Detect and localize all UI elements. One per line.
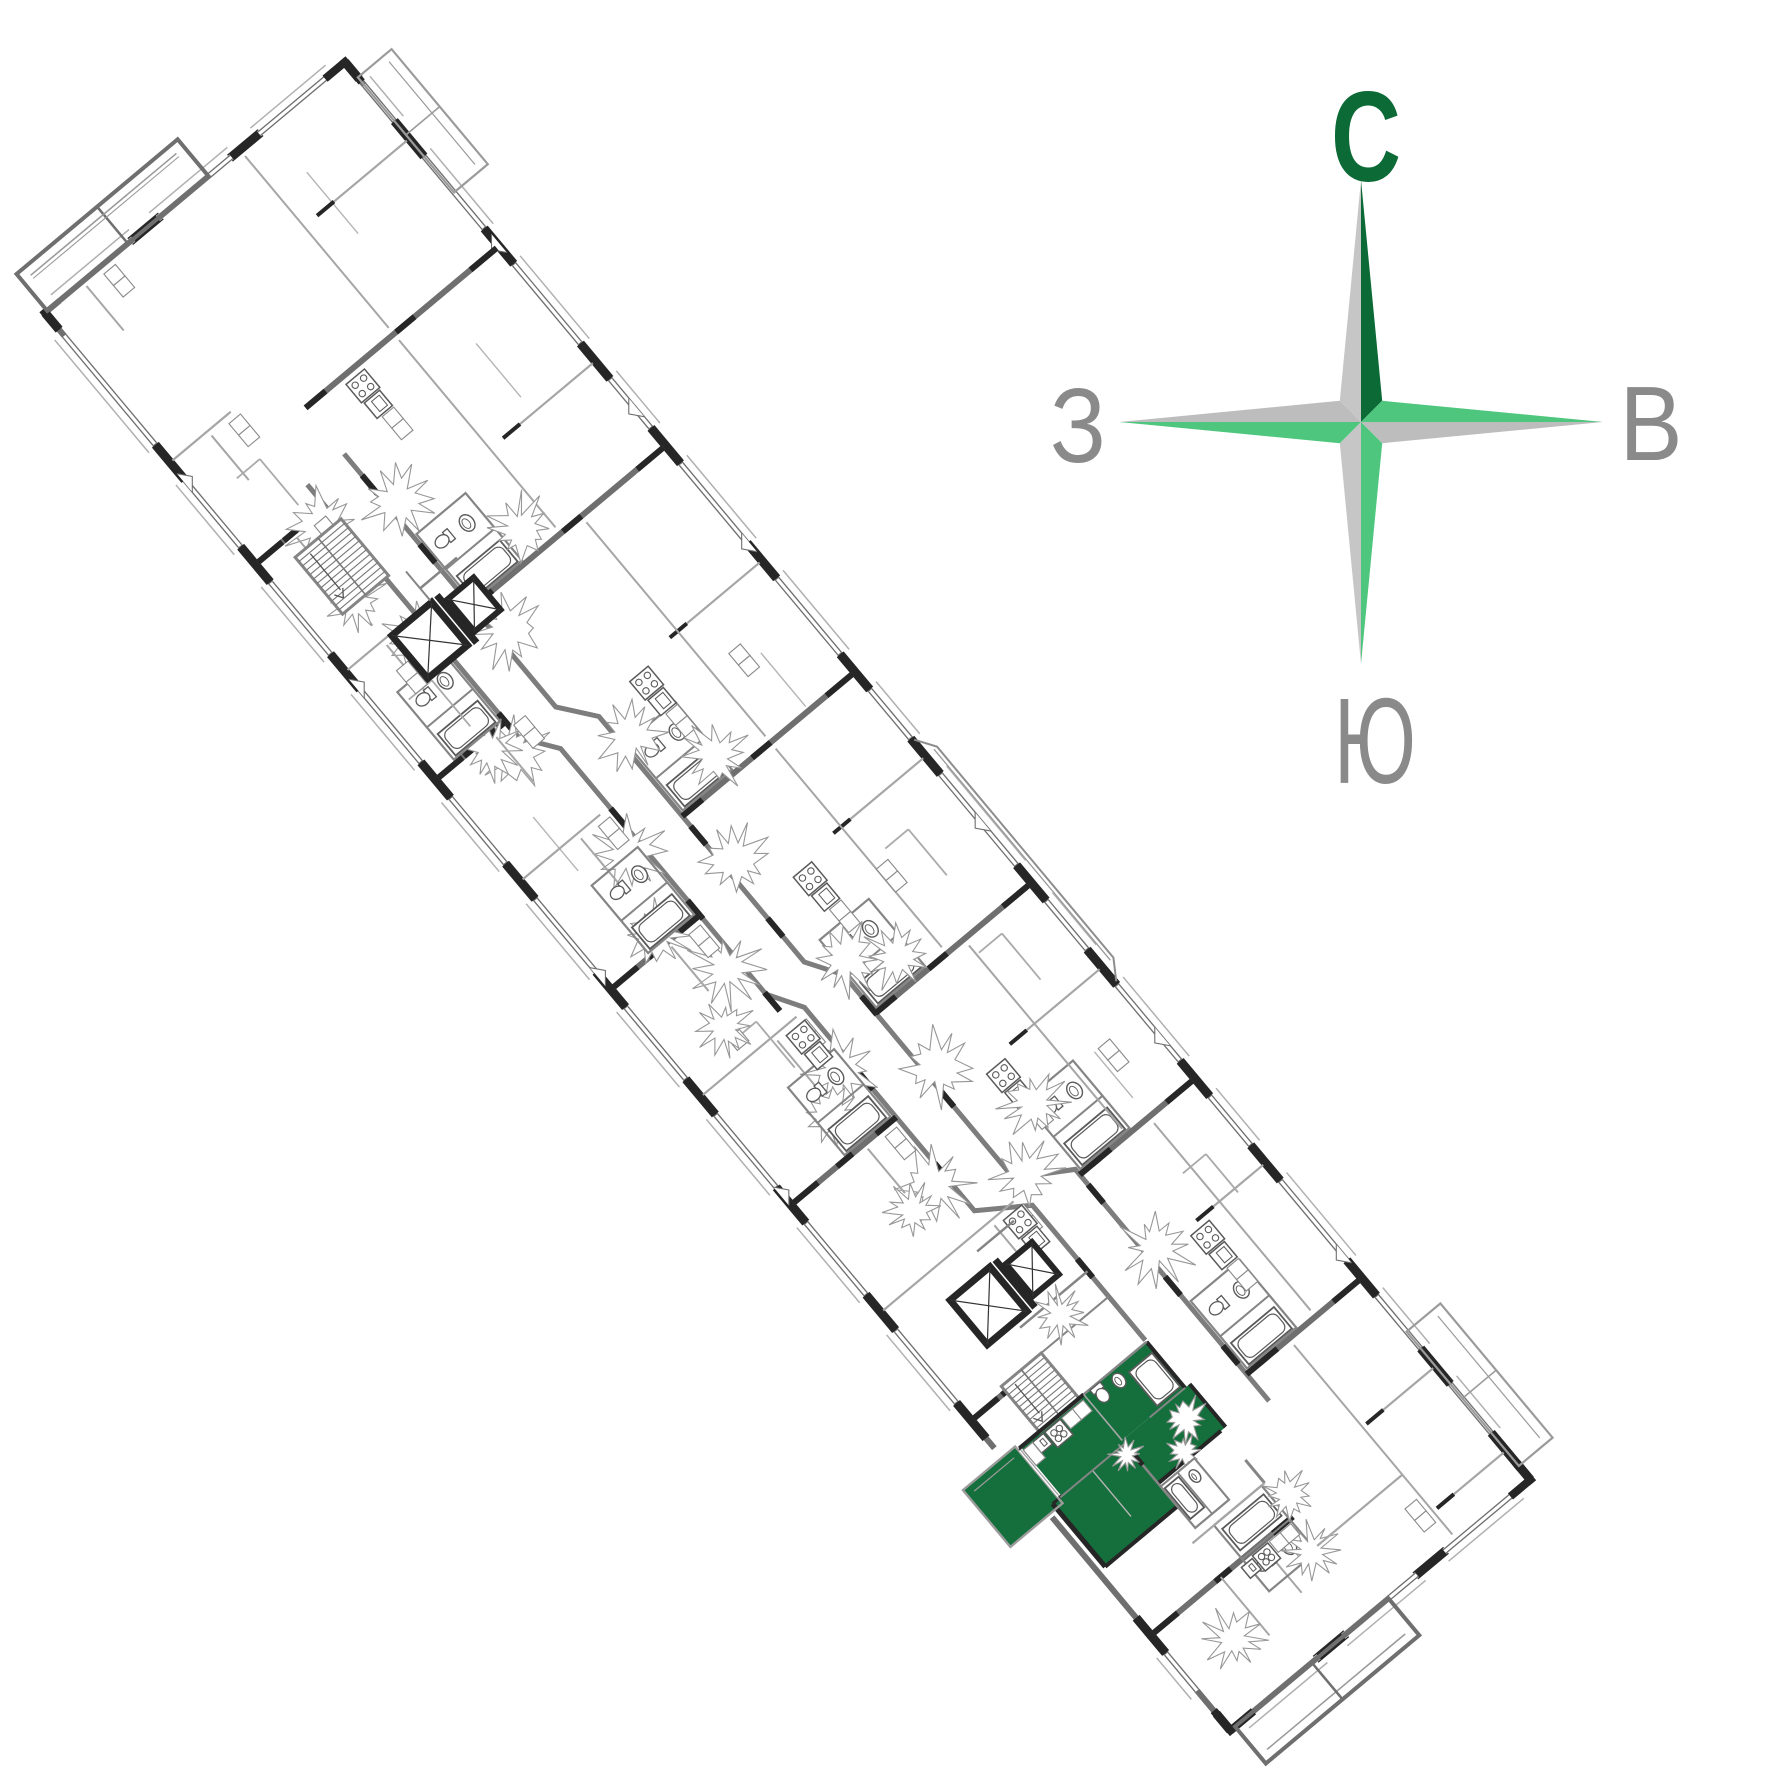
svg-text:З: З (1050, 367, 1106, 485)
svg-text:В: В (1620, 365, 1683, 483)
svg-text:Ю: Ю (1334, 673, 1416, 809)
svg-text:С: С (1331, 66, 1401, 209)
